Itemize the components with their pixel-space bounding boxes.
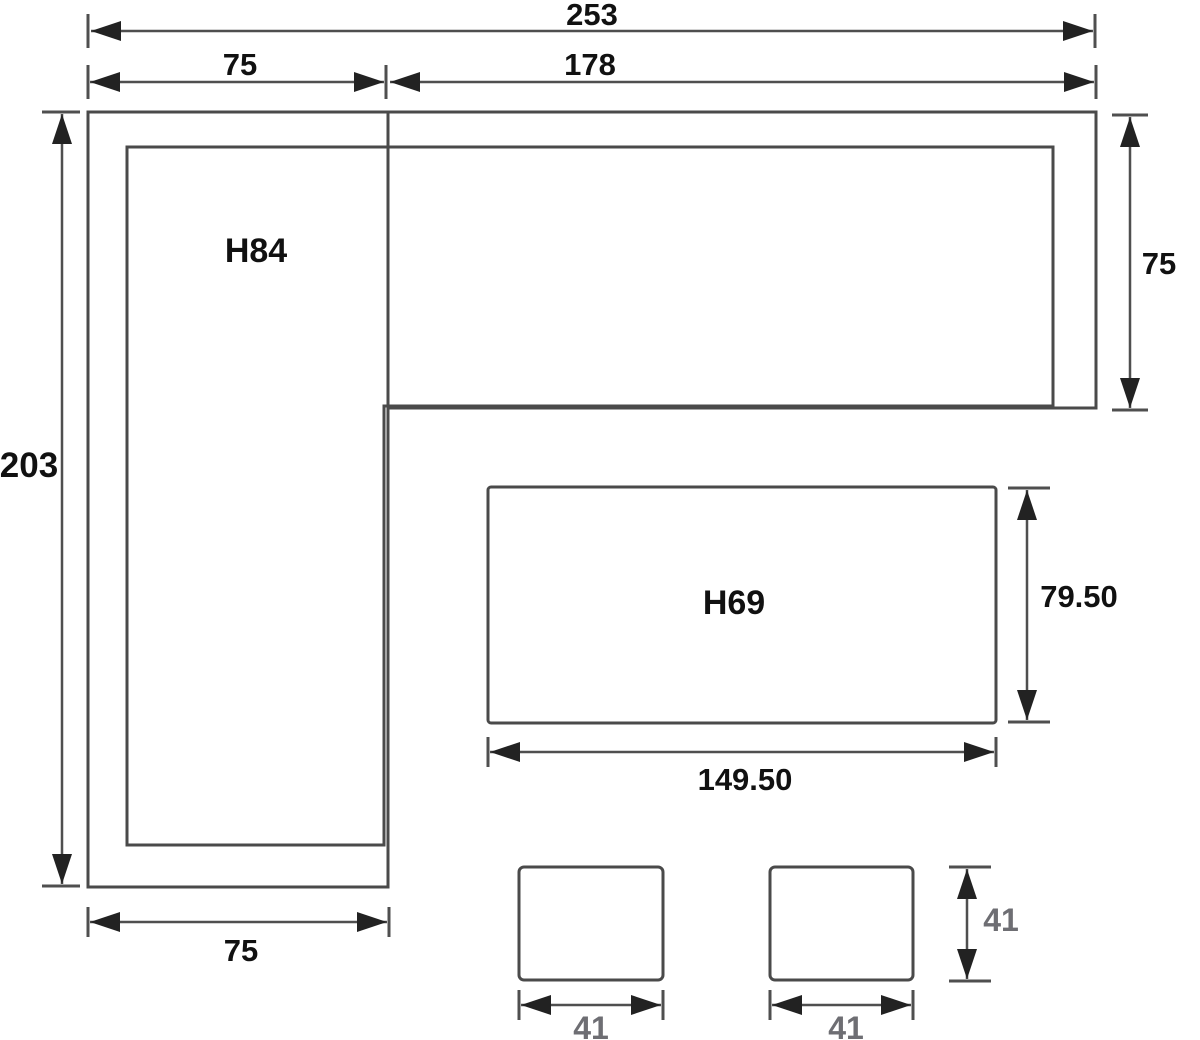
extension-ticks — [42, 14, 1148, 1020]
label-stool-depth: 41 — [983, 902, 1019, 938]
label-overall-depth: 203 — [0, 446, 58, 485]
dimension-lines — [62, 31, 1130, 1005]
dimension-labels: 253 75 178 203 75 H84 H69 79.50 149.50 7… — [0, 0, 1176, 1040]
label-overall-width: 253 — [566, 0, 618, 32]
label-top-right-width: 178 — [564, 47, 616, 82]
label-right-section-depth: 75 — [1142, 246, 1176, 281]
drawing-svg: 253 75 178 203 75 H84 H69 79.50 149.50 7… — [0, 0, 1200, 1040]
sofa-outer-outline — [88, 112, 1096, 887]
stool-left-outline — [519, 867, 663, 980]
label-table: H69 — [703, 584, 765, 622]
label-table-depth: 79.50 — [1040, 579, 1118, 614]
stool-right-outline — [770, 867, 913, 980]
label-left-section-width: 75 — [224, 933, 258, 968]
sofa-outlines — [88, 112, 1096, 887]
label-left-section: H84 — [225, 232, 287, 270]
label-table-width: 149.50 — [698, 762, 793, 797]
dimension-drawing: 253 75 178 203 75 H84 H69 79.50 149.50 7… — [0, 0, 1200, 1040]
label-stool-right-width: 41 — [828, 1010, 864, 1040]
label-stool-left-width: 41 — [573, 1010, 609, 1040]
label-top-left-width: 75 — [223, 47, 257, 82]
